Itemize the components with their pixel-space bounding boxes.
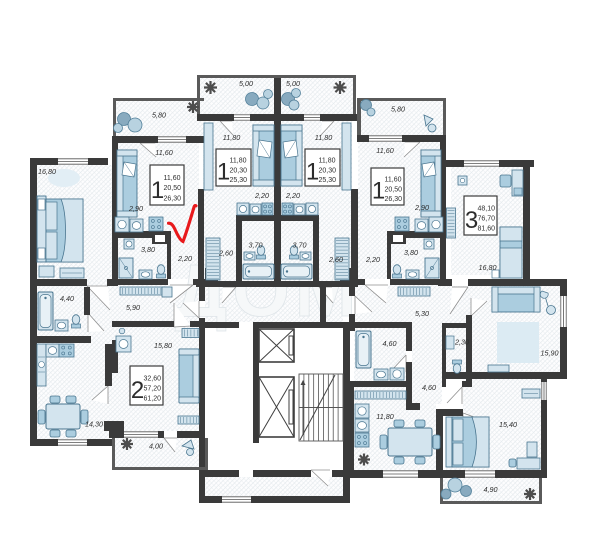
svg-text:48,10: 48,10 [478,205,496,212]
svg-text:3,70: 3,70 [249,241,263,250]
svg-text:5,80: 5,80 [152,111,166,120]
svg-text:11,80: 11,80 [376,412,393,421]
svg-text:4,60: 4,60 [422,383,436,392]
svg-text:2,20: 2,20 [254,191,269,200]
svg-text:32,60: 32,60 [144,375,162,382]
svg-text:16,80: 16,80 [38,167,56,176]
svg-text:1: 1 [372,177,385,204]
svg-text:76,70: 76,70 [478,216,496,223]
svg-text:2,60: 2,60 [328,255,343,264]
svg-text:15,40: 15,40 [499,420,517,429]
svg-text:2,20: 2,20 [365,255,380,264]
svg-text:5,80: 5,80 [391,105,405,114]
svg-text:57,20: 57,20 [144,386,162,393]
svg-text:11,80: 11,80 [223,133,240,142]
svg-text:3,80: 3,80 [141,245,155,254]
svg-text:25,30: 25,30 [319,177,337,184]
svg-text:11,80: 11,80 [315,133,332,142]
svg-text:11,80: 11,80 [319,158,336,165]
svg-text:5,30: 5,30 [415,309,429,318]
svg-text:81,60: 81,60 [478,226,496,233]
svg-text:20,30: 20,30 [230,167,248,174]
svg-text:4,40: 4,40 [60,294,74,303]
svg-text:20,30: 20,30 [319,167,337,174]
svg-text:25,30: 25,30 [230,177,248,184]
svg-text:15,90: 15,90 [541,349,559,358]
svg-text:5,90: 5,90 [126,303,140,312]
svg-text:2,20: 2,20 [177,254,192,263]
svg-text:16,80: 16,80 [479,263,497,272]
svg-text:20,50: 20,50 [385,186,403,193]
svg-text:5,00: 5,00 [286,79,300,88]
svg-text:14,30: 14,30 [85,420,103,429]
svg-text:5,00: 5,00 [239,79,253,88]
svg-text:11,60: 11,60 [155,148,172,157]
svg-text:2,30: 2,30 [454,338,469,347]
svg-text:3,70: 3,70 [293,241,307,250]
svg-text:61,20: 61,20 [144,396,162,403]
svg-text:3,80: 3,80 [404,248,418,257]
svg-text:1: 1 [151,177,164,204]
svg-text:20,50: 20,50 [164,185,182,192]
svg-text:15,80: 15,80 [154,341,172,350]
svg-text:11,60: 11,60 [385,177,402,184]
svg-text:2,90: 2,90 [128,204,143,213]
svg-text:4,60: 4,60 [383,339,397,348]
svg-text:2,20: 2,20 [285,191,300,200]
svg-text:1: 1 [306,158,319,185]
svg-text:2,60: 2,60 [218,249,233,258]
svg-text:2,90: 2,90 [414,203,429,212]
svg-text:26,30: 26,30 [164,196,182,203]
svg-text:11,60: 11,60 [164,175,181,182]
svg-text:4,90: 4,90 [484,485,498,494]
svg-text:11,60: 11,60 [376,146,393,155]
svg-text:3: 3 [465,207,478,234]
svg-text:26,30: 26,30 [385,196,403,203]
svg-text:4,00: 4,00 [149,442,163,451]
svg-text:2: 2 [131,377,144,404]
svg-text:1: 1 [217,158,230,185]
svg-text:11,80: 11,80 [230,158,247,165]
